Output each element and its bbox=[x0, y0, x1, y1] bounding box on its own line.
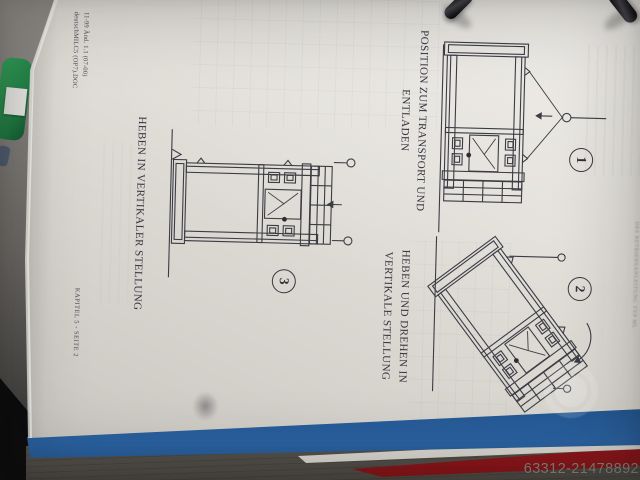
sling-eye bbox=[344, 237, 352, 245]
figure-3-caption: HEBEN IN VERTIKALER STELLUNG bbox=[128, 78, 152, 348]
figure-1-caption: POSITION ZUM TRANSPORT UND ENTLADEN bbox=[394, 12, 433, 229]
sling-ring bbox=[562, 113, 571, 122]
footer-revision: 11-99 Änd. 1.1 (07-00) deutschMILC5 (OP7… bbox=[67, 12, 91, 162]
ground-line bbox=[439, 44, 444, 232]
ground-line bbox=[433, 236, 437, 391]
ground-line bbox=[168, 129, 172, 277]
crane-cable bbox=[571, 118, 606, 119]
sling-eye bbox=[347, 159, 355, 167]
crane-cable bbox=[510, 256, 558, 257]
figure-3-drawing bbox=[159, 104, 364, 299]
photo-watermark-id: 63312-21478892 bbox=[524, 461, 639, 477]
foot-bracket bbox=[172, 149, 181, 159]
watermark-gear-icon bbox=[528, 348, 614, 434]
footer-chapter: KAPITEL 5 - SEITE 2 bbox=[70, 288, 82, 357]
white-label-tab bbox=[4, 87, 28, 116]
ink-smudge bbox=[192, 391, 219, 422]
sling-eye bbox=[558, 254, 565, 261]
photo-of-manual-page: DES BETRIEBSANLEITUNG TYP ML bbox=[0, 0, 640, 480]
figure-2-caption: HEBEN UND DREHEN IN VERTIKALE STELLUNG bbox=[377, 226, 415, 407]
figure-1-drawing bbox=[434, 16, 615, 251]
